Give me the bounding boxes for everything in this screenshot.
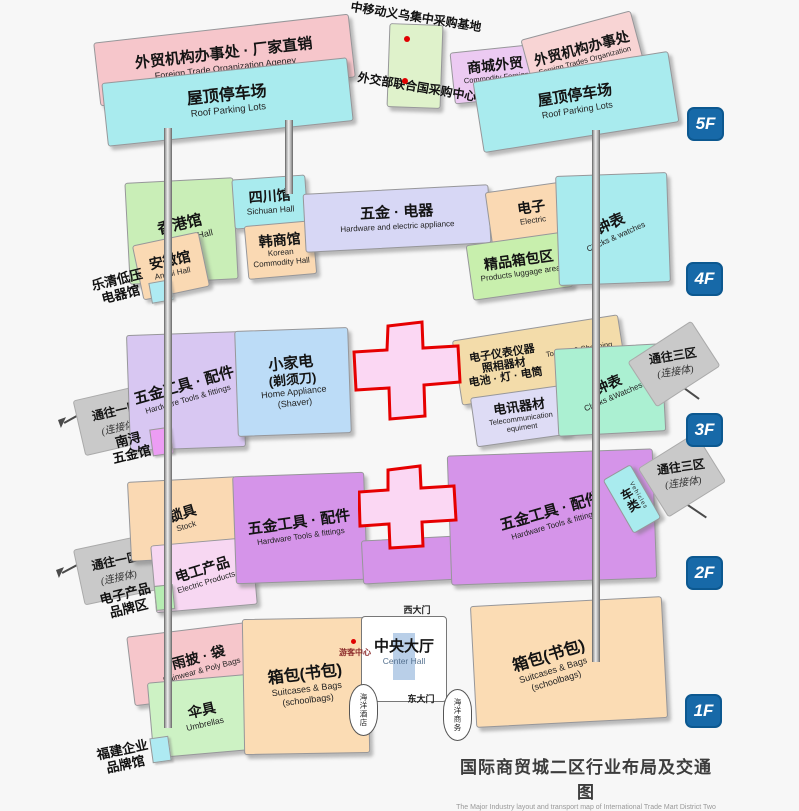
f4-hardware-electric-section: 五金 · 电器 Hardware and electric appliance [303, 184, 492, 253]
f1-ocean-hotel-bubble: 海洋酒店 [349, 684, 378, 736]
map-title-en: The Major Industry layout and transport … [452, 804, 720, 811]
trade-mart-map: 中移动义乌集中采购基地 外交部联合国采购中心 外贸机构办事处 · 厂家直销 Fo… [0, 0, 799, 799]
label-yueqing-hall: 乐清低压 电器馆 [74, 262, 165, 313]
elevator-shaft-left [164, 128, 172, 728]
f1-bags-left-section: 箱包(书包) Suitcases & Bags (schoolbags) [242, 617, 370, 755]
label-fujian-brand-hall: 福建企业 品牌馆 [82, 734, 167, 781]
section-subtitle: equiment [506, 422, 538, 434]
floor-badge-4f: 4F [686, 262, 723, 296]
section-subtitle: (Shaver) [278, 397, 313, 410]
cross-shape [359, 466, 456, 548]
direction-arrow-icon [48, 562, 64, 578]
f2-hardware-tools-left-section: 五金工具 · 配件 Hardware Tools & fittings [232, 472, 368, 585]
section-subtitle: Electric [520, 215, 547, 227]
cross-shape [354, 322, 460, 419]
bubble-label: 海洋酒店 [358, 693, 369, 727]
red-dot-marker [402, 78, 408, 84]
section-subtitle: Hardware and electric appliance [340, 220, 455, 235]
section-title: 韩商馆 [258, 231, 301, 250]
section-title: 中央大厅 [374, 639, 434, 656]
label-west-gate: 西大门 [394, 603, 440, 616]
f3-cross-junction [352, 320, 462, 422]
section-subtitle: Center Hall [383, 657, 426, 666]
elevator-shaft-center-left [285, 120, 293, 194]
floor-badge-2f: 2F [686, 556, 723, 590]
direction-arrow-icon [50, 412, 66, 428]
f3-home-appliance-section: 小家电 (剃须刀) Home Appliance (Shaver) [234, 327, 352, 437]
f1-ocean-business-bubble: 海洋商务 [443, 689, 472, 741]
section-subtitle: Commodity Hall [253, 256, 310, 270]
elevator-shaft-right [592, 130, 600, 662]
floor-badge-1f: 1F [685, 694, 722, 728]
f1-center-hall: 中央大厅 Center Hall [361, 616, 447, 702]
red-dot-marker [351, 639, 356, 644]
f2-cross-junction [358, 462, 458, 550]
section-subtitle: Sichuan Hall [246, 204, 294, 216]
f4-clocks-section: 钟表 Clocks & watches [555, 172, 671, 286]
map-title-zh: 国际商贸城二区行业布局及交通图 [452, 753, 720, 803]
f1-bags-right-section: 箱包(书包) Suitcases & Bags (schoolbags) [470, 596, 668, 728]
red-dot-marker [404, 36, 410, 42]
map-footer-title: 国际商贸城二区行业布局及交通图 The Major Industry layou… [452, 753, 720, 811]
floor-badge-3f: 3F [686, 413, 723, 447]
label-visitor-center: 游客中心 [332, 647, 378, 658]
label-east-gate: 东大门 [398, 692, 444, 705]
floor-badge-5f: 5F [687, 107, 724, 141]
bubble-label: 海洋商务 [452, 698, 463, 732]
